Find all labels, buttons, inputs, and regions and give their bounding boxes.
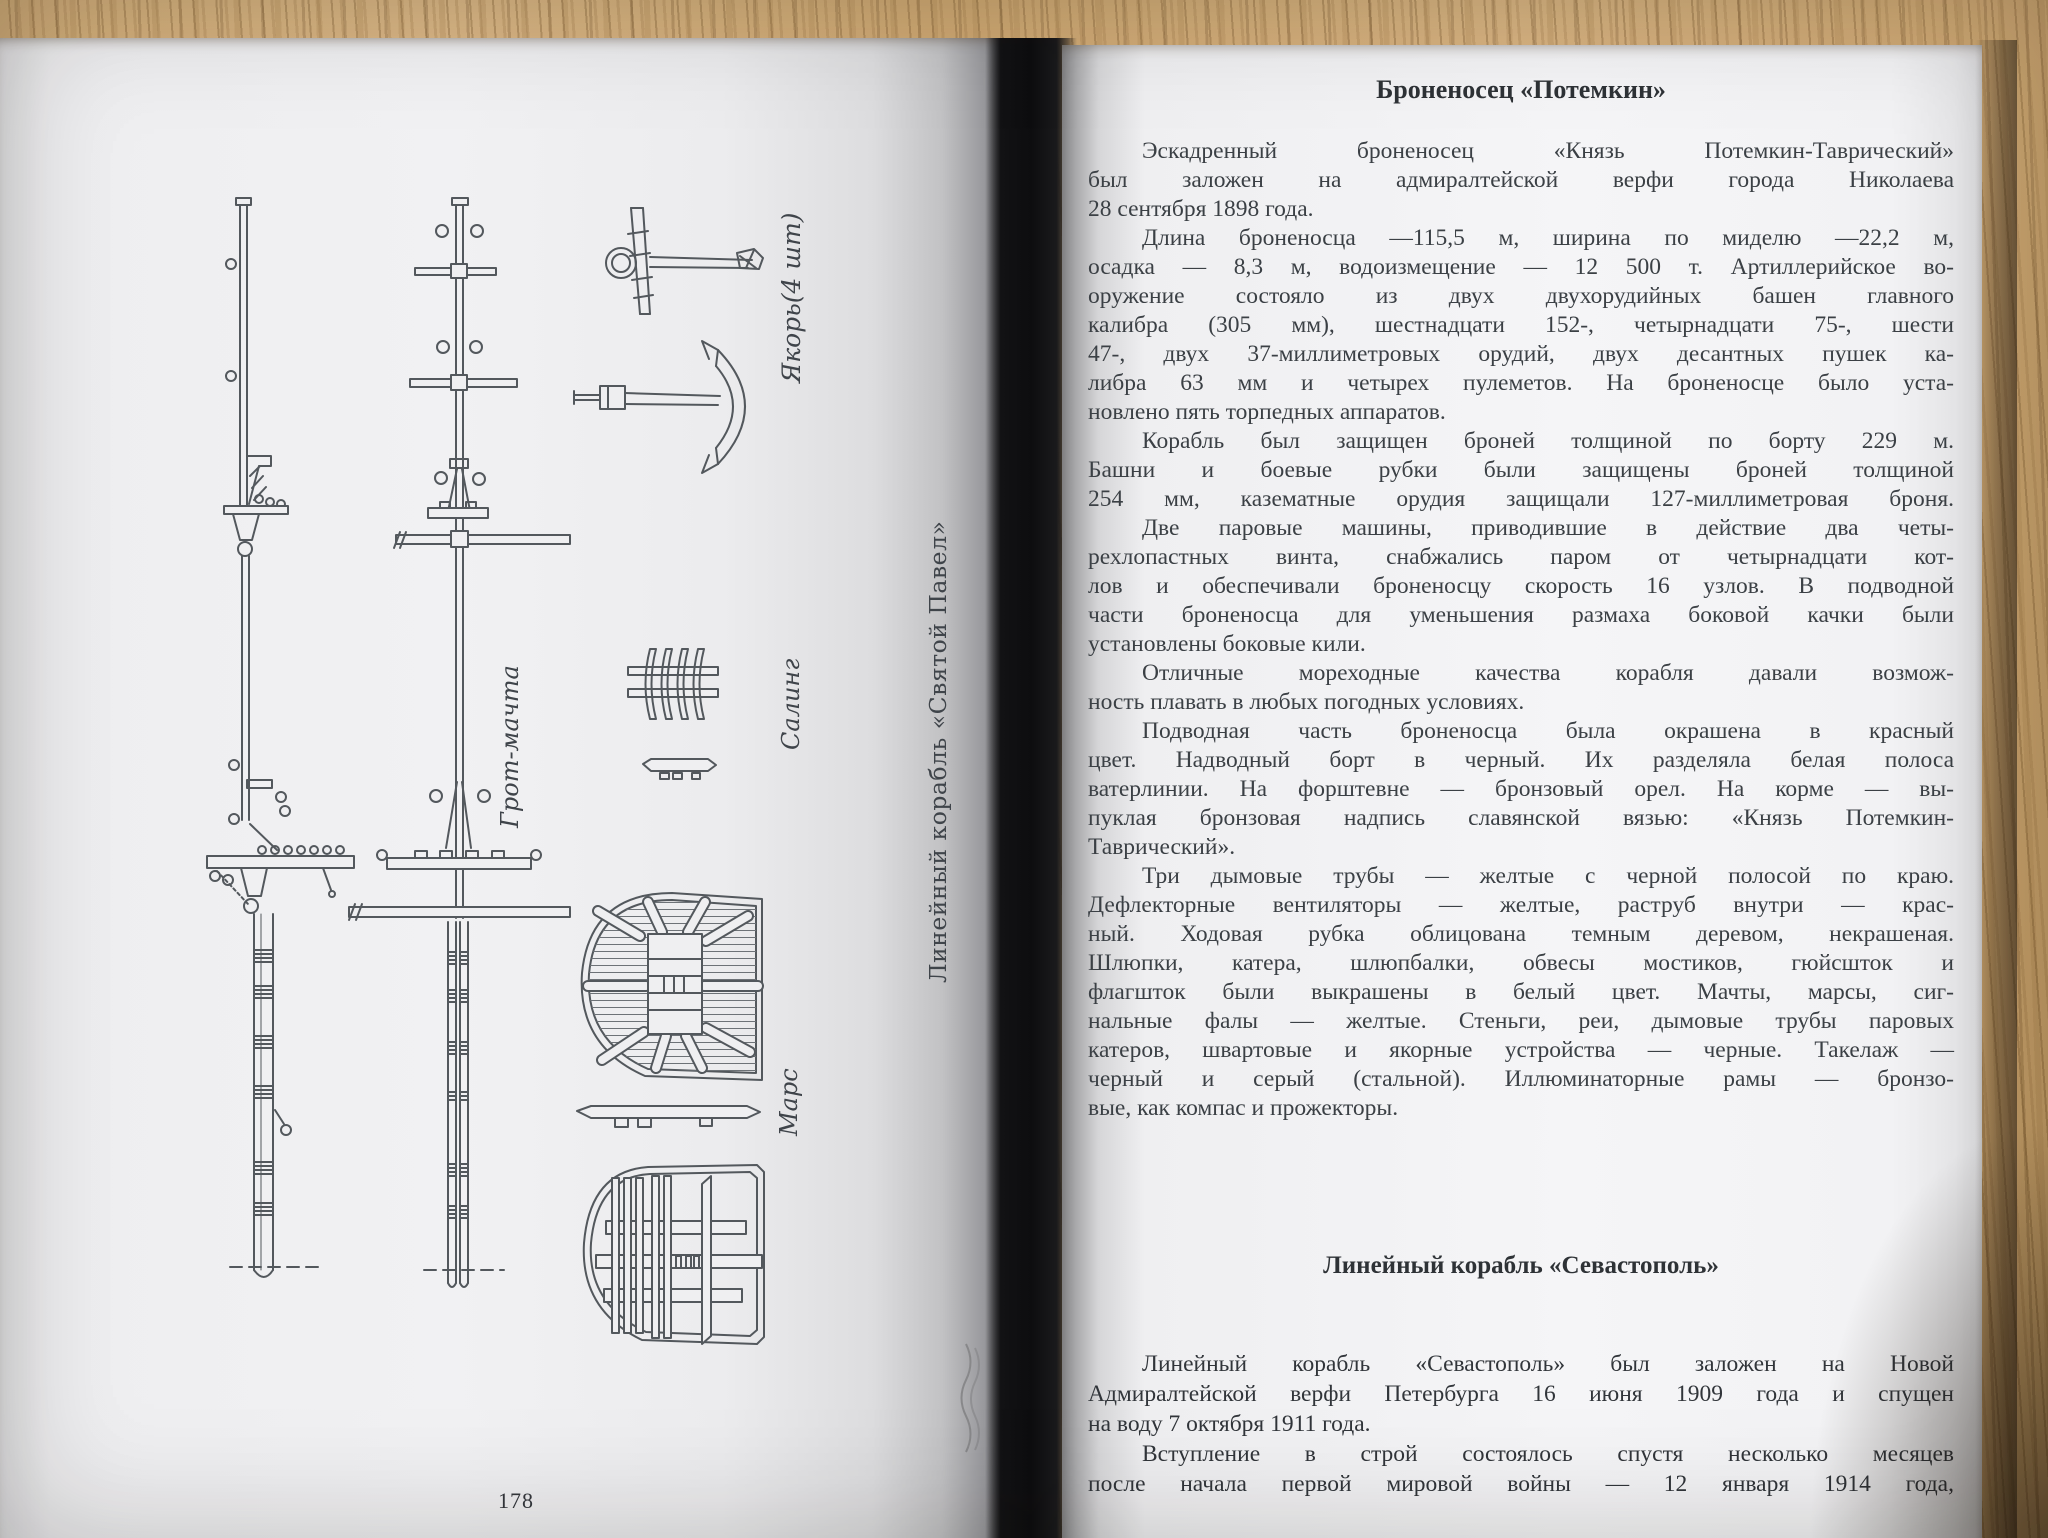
figure-ship-rigging-drawings: Якорь(4 шт) Салинг Марс Грот-мачта Линей… xyxy=(0,38,1002,1538)
text-line: Дефлекторные вентиляторы — желтые, растр… xyxy=(1088,891,1954,920)
paragraph: Отличные мореходные качества корабля дав… xyxy=(1088,659,1954,717)
right-page-edge-shadow xyxy=(1975,40,2017,1538)
paragraph: Подводная часть броненосца была окрашена… xyxy=(1088,717,1954,862)
text-line: вые, как компас и прожекторы. xyxy=(1088,1094,1954,1123)
text-line: либра 63 мм и четырех пулеметов. На брон… xyxy=(1088,369,1954,398)
paragraph: Длина броненосца —115,5 м, ширина по мид… xyxy=(1088,224,1954,427)
text-line: пуклая бронзовая надпись славянской вязь… xyxy=(1088,804,1954,833)
anchor-drawing xyxy=(574,208,763,473)
text-line: Башни и боевые рубки были защищены броне… xyxy=(1088,456,1954,485)
mast-front-view-drawing xyxy=(349,198,570,1287)
text-line: установлены боковые кили. xyxy=(1088,630,1954,659)
text-line: был заложен на адмиралтейской верфи горо… xyxy=(1088,166,1954,195)
text-line: Таврический». xyxy=(1088,833,1954,862)
mast-side-view-drawing xyxy=(207,198,354,1277)
text-line: Корабль был защищен броней толщиной по б… xyxy=(1088,427,1954,456)
article-title: Броненосец «Потемкин» xyxy=(1088,75,1954,105)
text-line: катеров, швартовые и якорные устройства … xyxy=(1088,1036,1954,1065)
text-line: 254 мм, казематные орудия защищали 127-м… xyxy=(1088,485,1954,514)
paragraph: Эскадренный броненосец «Князь Потемкин-Т… xyxy=(1088,137,1954,224)
text-line: Линейный корабль «Севастополь» был залож… xyxy=(1088,1349,1954,1379)
text-line: Адмиралтейской верфи Петербурга 16 июня … xyxy=(1088,1379,1954,1409)
saling-drawing xyxy=(628,649,718,779)
section-title: Линейный корабль «Севастополь» xyxy=(1088,1251,1954,1281)
label-saling: Салинг xyxy=(777,659,805,750)
text-line: Шлюпки, катера, шлюпбалки, обвесы мостик… xyxy=(1088,949,1954,978)
text-line: Длина броненосца —115,5 м, ширина по мид… xyxy=(1088,224,1954,253)
book-page-left: Якорь(4 шт) Салинг Марс Грот-мачта Линей… xyxy=(0,38,1002,1538)
page-number-left: 178 xyxy=(498,1488,534,1514)
text-line: части броненосца для уменьшения размаха … xyxy=(1088,601,1954,630)
text-line: Три дымовые трубы — желтые с черной поло… xyxy=(1088,862,1954,891)
book-page-right: Броненосец «Потемкин» Эскадренный бронен… xyxy=(1062,45,1982,1538)
text-line: на воду 7 октября 1911 года. xyxy=(1088,1409,1954,1439)
paragraph: Три дымовые трубы — желтые с черной поло… xyxy=(1088,862,1954,1123)
mars-framework-drawing xyxy=(584,1165,764,1344)
open-book-photo: Якорь(4 шт) Салинг Марс Грот-мачта Линей… xyxy=(0,0,2048,1538)
page-edge-squiggles xyxy=(962,1344,980,1452)
mars-platform-drawing xyxy=(577,893,764,1127)
text-line: ность плавать в любых погодных условиях. xyxy=(1088,688,1954,717)
label-mars: Марс xyxy=(775,1068,803,1137)
text-line: осадка — 8,3 м, водоизмещение — 12 500 т… xyxy=(1088,253,1954,282)
text-line: черный и серый (стальной). Иллюминаторны… xyxy=(1088,1065,1954,1094)
figure-caption-ship-name: Линейный корабль «Святой Павел» xyxy=(924,521,952,983)
text-line: после начала первой мировой войны — 12 я… xyxy=(1088,1469,1954,1499)
text-line: Вступление в строй состоялось спустя нес… xyxy=(1088,1439,1954,1469)
text-line: ватерлинии. На форштевне — бронзовый оре… xyxy=(1088,775,1954,804)
paragraph: Две паровые машины, приводившие в действ… xyxy=(1088,514,1954,659)
text-line: цвет. Надводный борт в черный. Их раздел… xyxy=(1088,746,1954,775)
paragraph: Вступление в строй состоялось спустя нес… xyxy=(1088,1439,1954,1499)
label-anchor: Якорь(4 шт) xyxy=(777,212,806,384)
right-page-text-block: Броненосец «Потемкин» Эскадренный бронен… xyxy=(1062,75,1982,1538)
text-line: рехлопастных винта, снабжались паром от … xyxy=(1088,543,1954,572)
page-number-right: 179 xyxy=(1417,1533,1507,1538)
article-body: Эскадренный броненосец «Князь Потемкин-Т… xyxy=(1088,137,1954,1123)
label-grot-machta: Грот-мачта xyxy=(496,665,524,829)
section-body: Линейный корабль «Севастополь» был залож… xyxy=(1088,1349,1954,1499)
text-line: флагшток были выкрашены в белый цвет. Ма… xyxy=(1088,978,1954,1007)
text-line: калибра (305 мм), шестнадцати 152-, четы… xyxy=(1088,311,1954,340)
paragraph: Корабль был защищен броней толщиной по б… xyxy=(1088,427,1954,514)
text-line: Отличные мореходные качества корабля дав… xyxy=(1088,659,1954,688)
text-line: лов и обеспечивали броненосцу скорость 1… xyxy=(1088,572,1954,601)
text-line: 28 сентября 1898 года. xyxy=(1088,195,1954,224)
text-line: ный. Ходовая рубка облицована темным дер… xyxy=(1088,920,1954,949)
text-line: Подводная часть броненосца была окрашена… xyxy=(1088,717,1954,746)
text-line: 47-, двух 37-миллиметровых орудий, двух … xyxy=(1088,340,1954,369)
text-line: оружение состояло из двух двухорудийных … xyxy=(1088,282,1954,311)
text-line: Две паровые машины, приводившие в действ… xyxy=(1088,514,1954,543)
paragraph: Линейный корабль «Севастополь» был залож… xyxy=(1088,1349,1954,1439)
text-line: Эскадренный броненосец «Князь Потемкин-Т… xyxy=(1088,137,1954,166)
text-line: новлено пять торпедных аппаратов. xyxy=(1088,398,1954,427)
text-line: нальные фалы — желтые. Стеньги, реи, дым… xyxy=(1088,1007,1954,1036)
